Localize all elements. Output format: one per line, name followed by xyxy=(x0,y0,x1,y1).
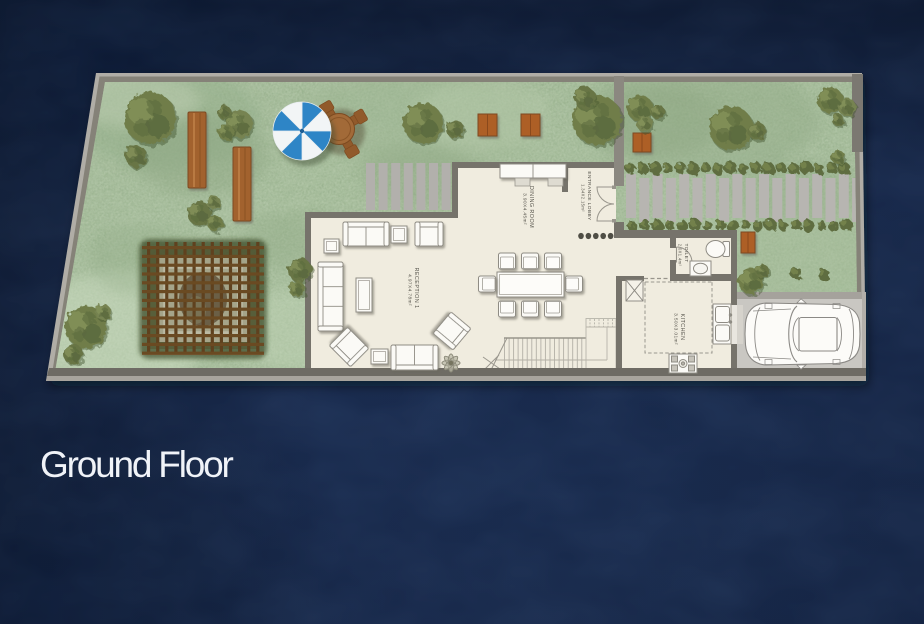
svg-text:RECEPTION 1: RECEPTION 1 xyxy=(413,267,419,308)
svg-text:DINING ROOM: DINING ROOM xyxy=(528,186,534,228)
svg-text:4.97X4.78m²: 4.97X4.78m² xyxy=(407,274,413,306)
svg-text:1.34X2.15m²: 1.34X2.15m² xyxy=(581,184,586,212)
svg-text:3.50X3.01m²: 3.50X3.01m² xyxy=(673,313,679,345)
svg-text:2.0X1.4m²: 2.0X1.4m² xyxy=(678,244,683,267)
svg-text:3.90X4.45m²: 3.90X4.45m² xyxy=(522,193,528,225)
svg-text:TOILET: TOILET xyxy=(683,243,689,262)
svg-text:KITCHEN: KITCHEN xyxy=(679,314,685,341)
svg-text:ENTRANCE LOBBY: ENTRANCE LOBBY xyxy=(586,171,592,221)
